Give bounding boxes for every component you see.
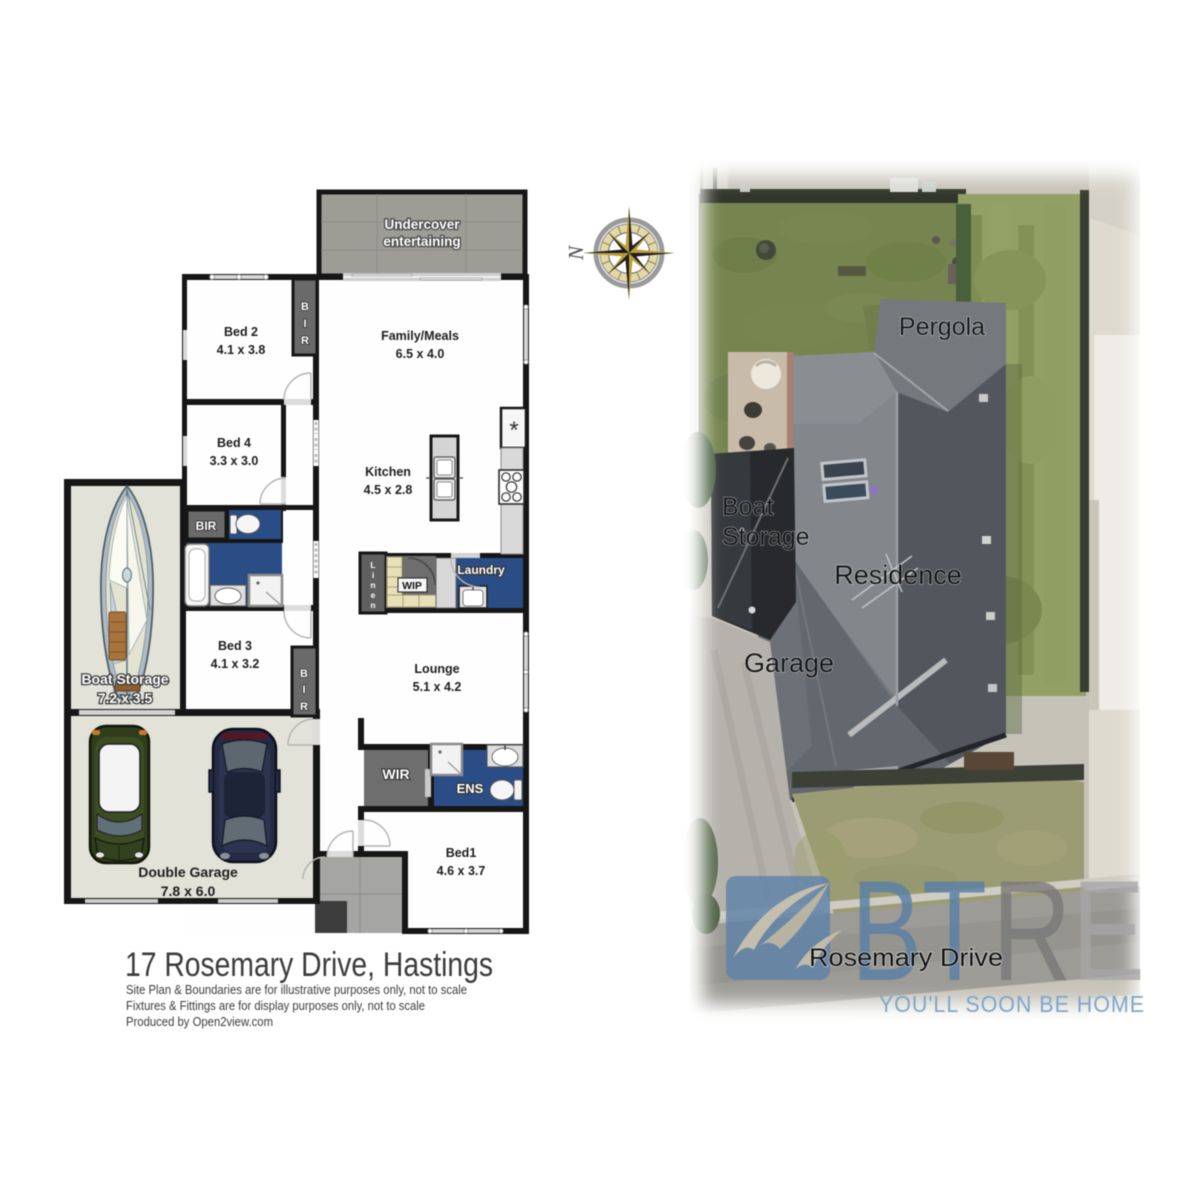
- svg-text:7.2 x 3.5: 7.2 x 3.5: [98, 690, 153, 706]
- svg-text:Double Garage: Double Garage: [138, 864, 238, 880]
- svg-text:Residence: Residence: [834, 560, 962, 590]
- svg-text:Laundry: Laundry: [457, 563, 505, 577]
- svg-text:e: e: [371, 590, 376, 600]
- svg-text:5.1 x 4.2: 5.1 x 4.2: [413, 680, 462, 694]
- svg-text:n: n: [370, 580, 375, 590]
- svg-text:ENS: ENS: [457, 781, 484, 796]
- svg-text:B: B: [301, 301, 309, 313]
- svg-text:Boat Storage: Boat Storage: [81, 671, 168, 687]
- svg-text:BIR: BIR: [196, 519, 217, 533]
- svg-text:Garage: Garage: [744, 648, 834, 678]
- svg-text:BT: BT: [851, 852, 987, 1011]
- svg-text:Bed 4: Bed 4: [217, 436, 251, 450]
- svg-text:R: R: [301, 335, 309, 347]
- svg-text:i: i: [372, 570, 374, 580]
- svg-text:4.5 x 2.8: 4.5 x 2.8: [364, 483, 413, 497]
- svg-text:R: R: [300, 701, 308, 713]
- svg-text:Rosemary Drive: Rosemary Drive: [809, 944, 1003, 972]
- svg-text:WIP: WIP: [402, 580, 422, 592]
- svg-text:WIR: WIR: [382, 766, 409, 782]
- svg-text:Storage: Storage: [722, 523, 810, 551]
- svg-text:Bed1: Bed1: [446, 846, 477, 860]
- svg-text:*: *: [509, 417, 518, 444]
- svg-text:Site Plan & Boundaries are for: Site Plan & Boundaries are for illustrat…: [126, 983, 467, 997]
- svg-text:Boat: Boat: [722, 493, 773, 521]
- svg-text:4.6 x 3.7: 4.6 x 3.7: [437, 864, 486, 878]
- svg-text:Kitchen: Kitchen: [365, 465, 411, 479]
- svg-text:n: n: [370, 600, 375, 610]
- svg-text:Bed 2: Bed 2: [224, 325, 258, 339]
- svg-text:Undercover: Undercover: [384, 217, 460, 232]
- svg-text:7.8 x 6.0: 7.8 x 6.0: [161, 883, 216, 899]
- svg-text:B: B: [300, 668, 308, 680]
- svg-text:Produced by Open2view.com: Produced by Open2view.com: [126, 1015, 273, 1029]
- svg-text:Fixtures & Fittings are for di: Fixtures & Fittings are for display purp…: [126, 999, 425, 1013]
- svg-text:RE: RE: [992, 852, 1145, 1011]
- svg-text:N: N: [564, 245, 588, 261]
- svg-text:6.5 x 4.0: 6.5 x 4.0: [396, 347, 445, 361]
- svg-text:3.3 x 3.0: 3.3 x 3.0: [210, 454, 259, 468]
- svg-text:4.1 x 3.8: 4.1 x 3.8: [217, 343, 266, 357]
- svg-text:I: I: [303, 318, 306, 330]
- svg-text:4.1 x 3.2: 4.1 x 3.2: [211, 657, 260, 671]
- svg-text:entertaining: entertaining: [383, 234, 460, 249]
- svg-text:YOU'LL SOON BE HOME: YOU'LL SOON BE HOME: [879, 991, 1145, 1017]
- svg-text:Lounge: Lounge: [414, 662, 459, 676]
- svg-text:I: I: [302, 684, 305, 696]
- svg-text:L: L: [370, 560, 375, 570]
- svg-text:Bed 3: Bed 3: [218, 639, 252, 653]
- svg-text:Pergola: Pergola: [899, 313, 985, 341]
- svg-text:Family/Meals: Family/Meals: [381, 329, 459, 343]
- svg-text:17 Rosemary Drive, Hastings: 17 Rosemary Drive, Hastings: [125, 946, 493, 984]
